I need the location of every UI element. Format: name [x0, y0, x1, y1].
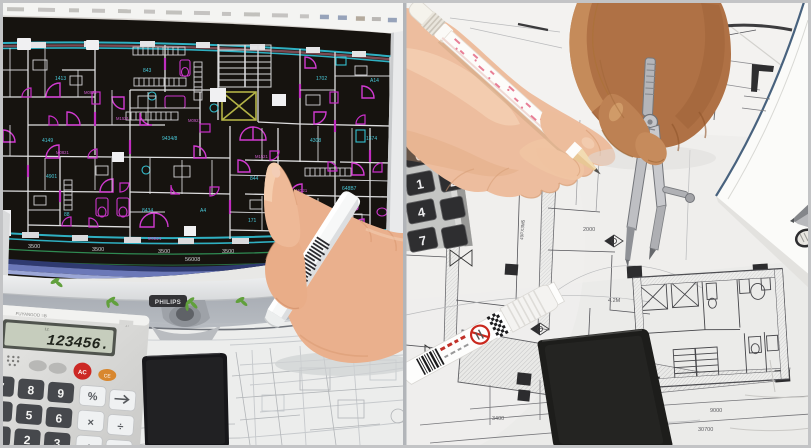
svg-text:1374: 1374	[366, 136, 377, 142]
svg-text:9000: 9000	[710, 408, 722, 414]
svg-text:3500: 3500	[92, 247, 104, 253]
svg-text:M1521: M1521	[116, 116, 129, 121]
svg-text:9: 9	[57, 386, 65, 400]
svg-text:4.2M: 4.2M	[608, 298, 621, 304]
svg-text:M0921: M0921	[84, 90, 97, 95]
svg-text:AC: AC	[78, 370, 88, 377]
svg-text:12.: 12.	[44, 327, 49, 331]
svg-text:9434/8: 9434/8	[162, 136, 178, 142]
svg-text:M0B21: M0B21	[148, 236, 162, 241]
svg-text:4308: 4308	[310, 138, 321, 144]
svg-text:M0821: M0821	[56, 150, 69, 155]
svg-text:1702: 1702	[316, 76, 327, 82]
svg-text:4149: 4149	[42, 138, 53, 144]
svg-text:M1521: M1521	[255, 154, 268, 159]
svg-text:3500: 3500	[28, 244, 40, 250]
svg-text:56008: 56008	[185, 257, 200, 263]
svg-text:88: 88	[64, 212, 70, 218]
svg-text:×: ×	[87, 417, 94, 429]
svg-text:30700: 30700	[698, 427, 713, 433]
svg-text:4901: 4901	[46, 174, 57, 180]
svg-text:M0921: M0921	[188, 118, 201, 123]
svg-text:844: 844	[250, 176, 259, 182]
svg-text:843: 843	[143, 68, 152, 74]
svg-text:3400: 3400	[492, 416, 504, 422]
svg-text:A4: A4	[200, 208, 206, 214]
svg-text:3500: 3500	[158, 249, 170, 255]
svg-text:8434: 8434	[142, 208, 153, 214]
svg-text:5: 5	[25, 408, 33, 422]
svg-text:CE: CE	[103, 373, 111, 380]
svg-text:648B7: 648B7	[342, 186, 357, 192]
svg-text:%: %	[87, 391, 98, 404]
svg-text:8: 8	[27, 383, 35, 397]
svg-text:PHILIPS: PHILIPS	[155, 299, 181, 306]
svg-text:1413: 1413	[55, 76, 66, 82]
svg-text:A14: A14	[370, 78, 379, 84]
svg-text:6: 6	[55, 411, 63, 425]
svg-text:3500: 3500	[222, 249, 234, 255]
svg-text:171: 171	[248, 218, 257, 224]
svg-text:2000: 2000	[583, 227, 595, 233]
svg-text:÷: ÷	[117, 421, 124, 433]
